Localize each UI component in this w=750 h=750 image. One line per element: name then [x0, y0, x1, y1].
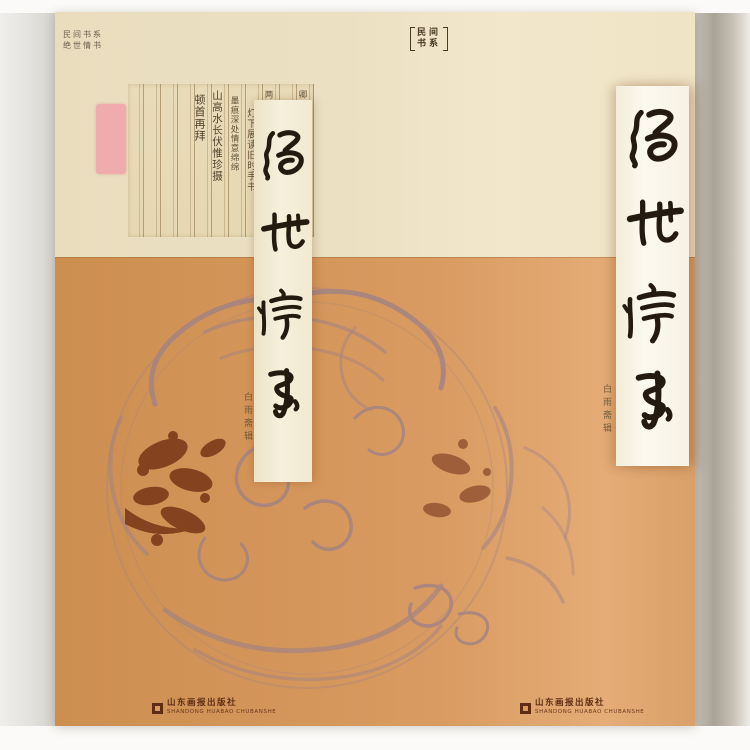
series-note-line: 民间书系 [63, 29, 103, 40]
publisher-logo-icon [152, 703, 163, 714]
dark-floral-cluster [125, 431, 229, 546]
red-seal [96, 104, 126, 174]
calligraphy-char-1 [253, 121, 312, 188]
calligraphy-char-4 [617, 362, 687, 439]
author-note: 白雨斋辑 [600, 384, 613, 468]
photo-backdrop-left [0, 0, 57, 750]
publisher-name: 山东画报出版社 [167, 699, 276, 708]
calligraphy-char-1 [618, 98, 688, 175]
accent-cluster [422, 439, 492, 519]
publisher-logo-icon [520, 703, 531, 714]
calligraphy-char-3 [618, 275, 687, 351]
calligraphy-char-4 [252, 361, 311, 428]
book-cover: 卿卿如晤别来无恙 一纸云笺难寄相思 两地相望各自珍重 灯下展读旧时手书 墨痕深处… [55, 12, 695, 725]
series-note: 民间书系 绝世情书 [63, 29, 103, 51]
series-badge: 民间 书系 [410, 27, 448, 51]
publisher-imprint: 山东画报出版社 SHANDONG HUABAO CHUBANSHE [152, 699, 276, 717]
publisher-imprint: 山东画报出版社 SHANDONG HUABAO CHUBANSHE [520, 699, 644, 717]
calligraphy-char-2 [620, 187, 689, 263]
series-note-line: 绝世情书 [63, 40, 103, 51]
front-title-banner [616, 86, 689, 466]
publisher-latin-name: SHANDONG HUABAO CHUBANSHE [167, 708, 276, 717]
left-bracket-icon [410, 27, 415, 51]
dragon-phoenix-medallion [55, 258, 695, 726]
spine-author-note: 白雨斋辑 [241, 392, 254, 478]
series-badge-line: 民间 [417, 28, 441, 39]
publisher-name: 山东画报出版社 [535, 699, 644, 708]
calligraphy-char-3 [254, 281, 312, 347]
photo-backdrop-right [688, 0, 750, 750]
calligraphy-char-2 [256, 201, 314, 267]
series-badge-line: 书系 [417, 39, 441, 50]
spine-title-banner [254, 100, 312, 482]
publisher-latin-name: SHANDONG HUABAO CHUBANSHE [535, 708, 644, 717]
manuscript-column: 山高水长伏惟珍摄 [208, 90, 225, 231]
right-bracket-icon [443, 27, 448, 51]
cover-bottom-band [55, 257, 695, 726]
manuscript-column: 顿首再拜 [191, 94, 208, 231]
manuscript-column: 墨痕深处情意绵绵 [225, 96, 242, 231]
photo-backdrop-bottom [0, 726, 750, 750]
